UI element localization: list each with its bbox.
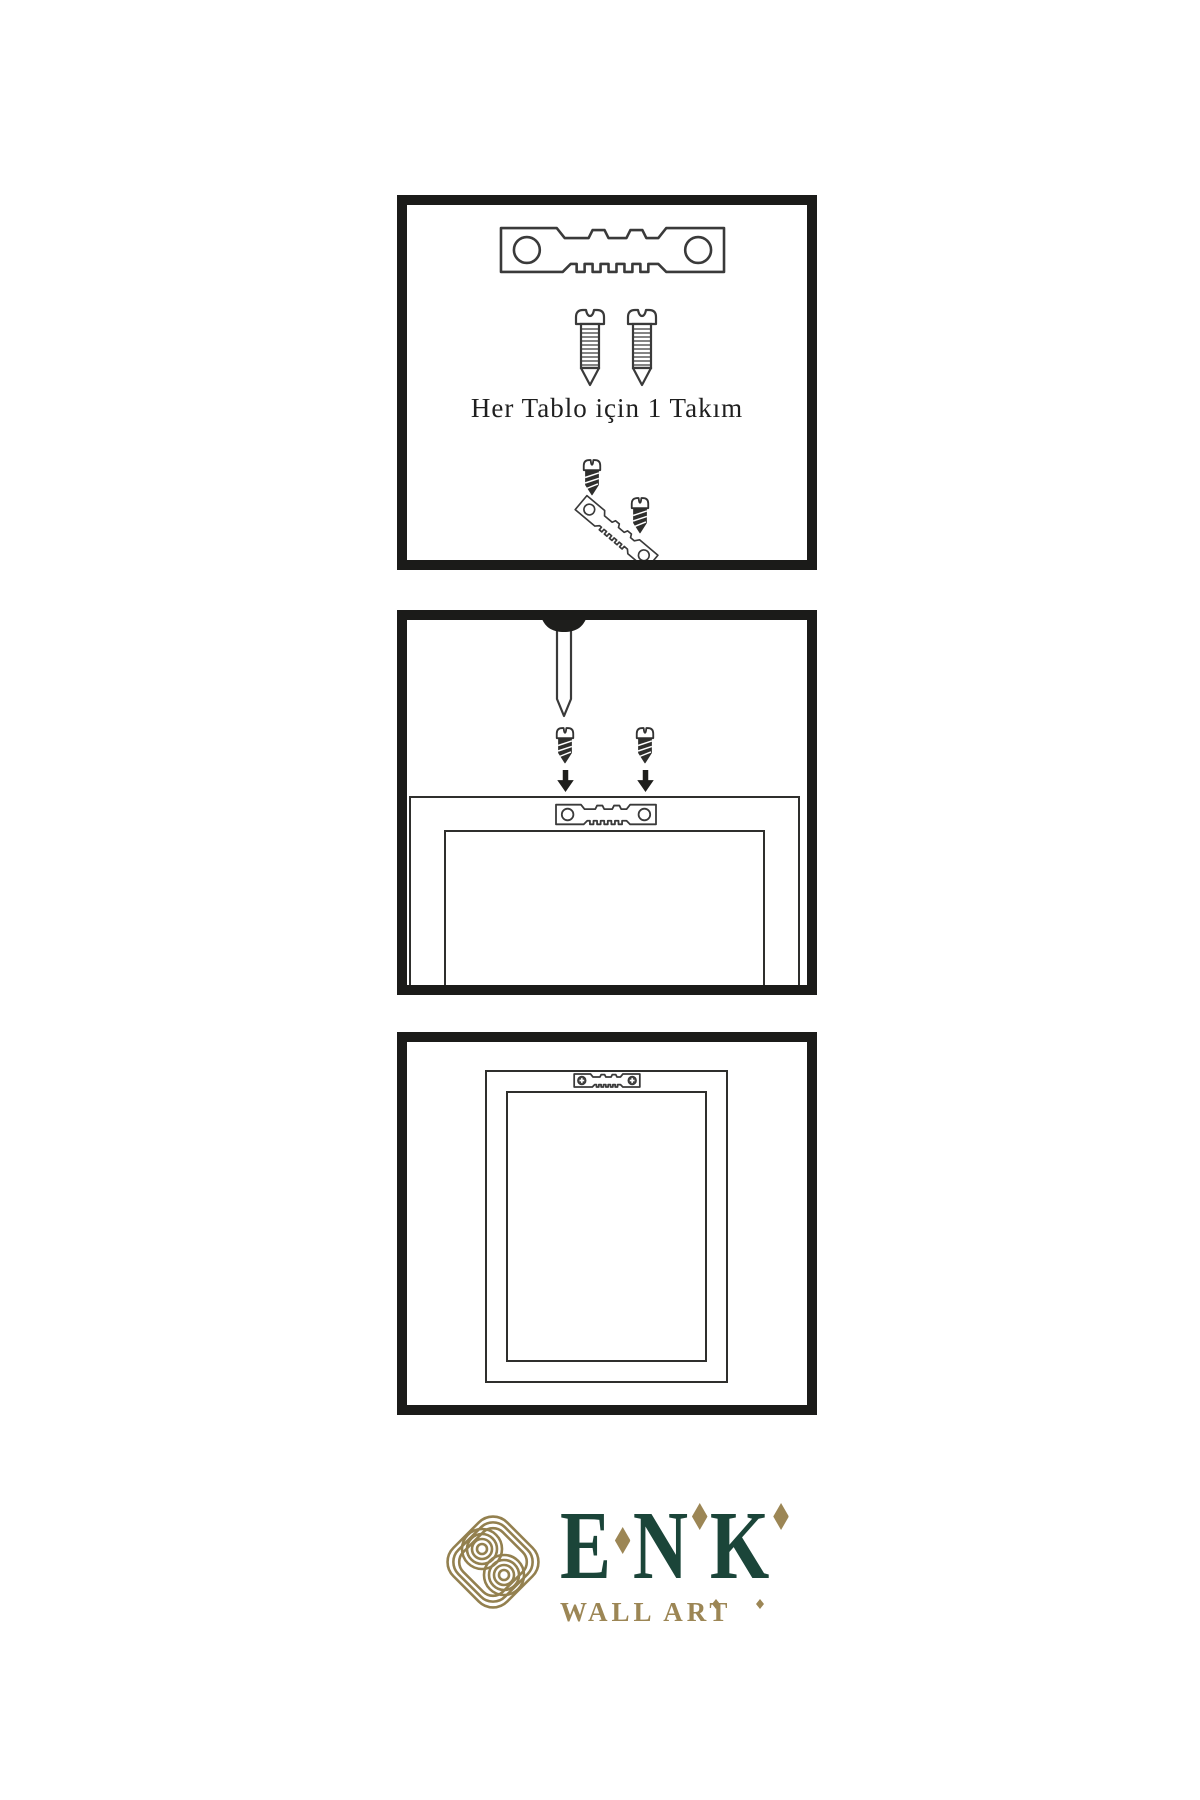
panel-mount-hanger	[397, 610, 817, 995]
frame-back-inner-outline	[444, 830, 765, 995]
kit-caption: Her Tablo için 1 Takım	[407, 393, 807, 424]
sawtooth-hanger-screwed-icon	[573, 1072, 641, 1089]
brand-letter: N	[633, 1492, 690, 1600]
screw-icon	[634, 725, 656, 766]
sawtooth-hanger-icon	[554, 802, 658, 827]
knot-logo-icon	[438, 1497, 548, 1627]
screw-icon	[573, 307, 607, 387]
brand-name: ENK	[560, 1500, 786, 1592]
brand-subtitle-text: WALL ART	[560, 1597, 731, 1627]
panel-frame-hung	[397, 1032, 817, 1415]
instruction-sheet: Her Tablo için 1 Takım ENK WALL ART	[0, 0, 1200, 1800]
brand-subtitle: WALL ART	[560, 1597, 850, 1628]
diamond-accent-icon	[773, 1503, 789, 1530]
screw-icon	[554, 725, 576, 766]
diamond-accent-icon	[756, 1599, 764, 1609]
screw-icon	[629, 495, 651, 536]
diamond-accent-icon	[615, 1527, 631, 1554]
sawtooth-hanger-icon	[497, 222, 728, 278]
arrow-down-icon	[637, 770, 654, 792]
brand-text: ENK WALL ART	[560, 1500, 850, 1628]
frame-back-inner-outline	[506, 1091, 707, 1362]
diamond-accent-icon	[692, 1503, 708, 1530]
brand-letter: E	[560, 1492, 613, 1600]
screw-icon	[625, 307, 659, 387]
brand-letter: K	[710, 1492, 771, 1600]
screw-icon	[581, 457, 603, 498]
wall-nail-icon	[541, 619, 587, 719]
panel-hardware-kit: Her Tablo için 1 Takım	[397, 195, 817, 570]
arrow-down-icon	[557, 770, 574, 792]
